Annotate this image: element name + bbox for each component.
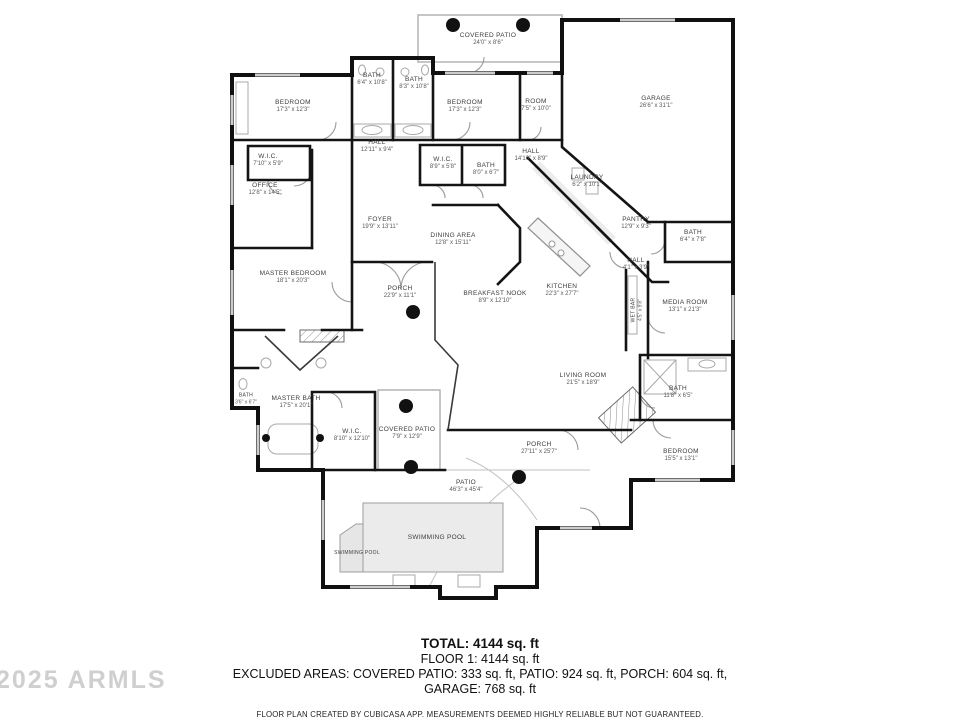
armls-watermark: 2025 ARMLS	[0, 666, 167, 695]
disclaimer-text: FLOOR PLAN CREATED BY CUBICASA APP. MEAS…	[0, 710, 960, 719]
kitchen-island	[528, 218, 590, 276]
covered-patio-top-outline	[418, 15, 562, 62]
light-partitions	[265, 262, 458, 430]
total-area-text: TOTAL: 4144 sq. ft	[0, 636, 960, 651]
columns	[262, 18, 530, 484]
floor-plan-page: { "watermark": "2025 ARMLS", "footer": {…	[0, 0, 960, 720]
hatched-area	[300, 330, 655, 443]
swimming-pool	[340, 503, 503, 587]
windows	[232, 20, 733, 587]
floor1-area-text: FLOOR 1: 4144 sq. ft	[0, 652, 960, 666]
floor-plan-drawing	[0, 0, 960, 720]
interior-walls	[232, 58, 733, 470]
door-arcs	[268, 57, 671, 528]
fixtures	[236, 65, 726, 454]
